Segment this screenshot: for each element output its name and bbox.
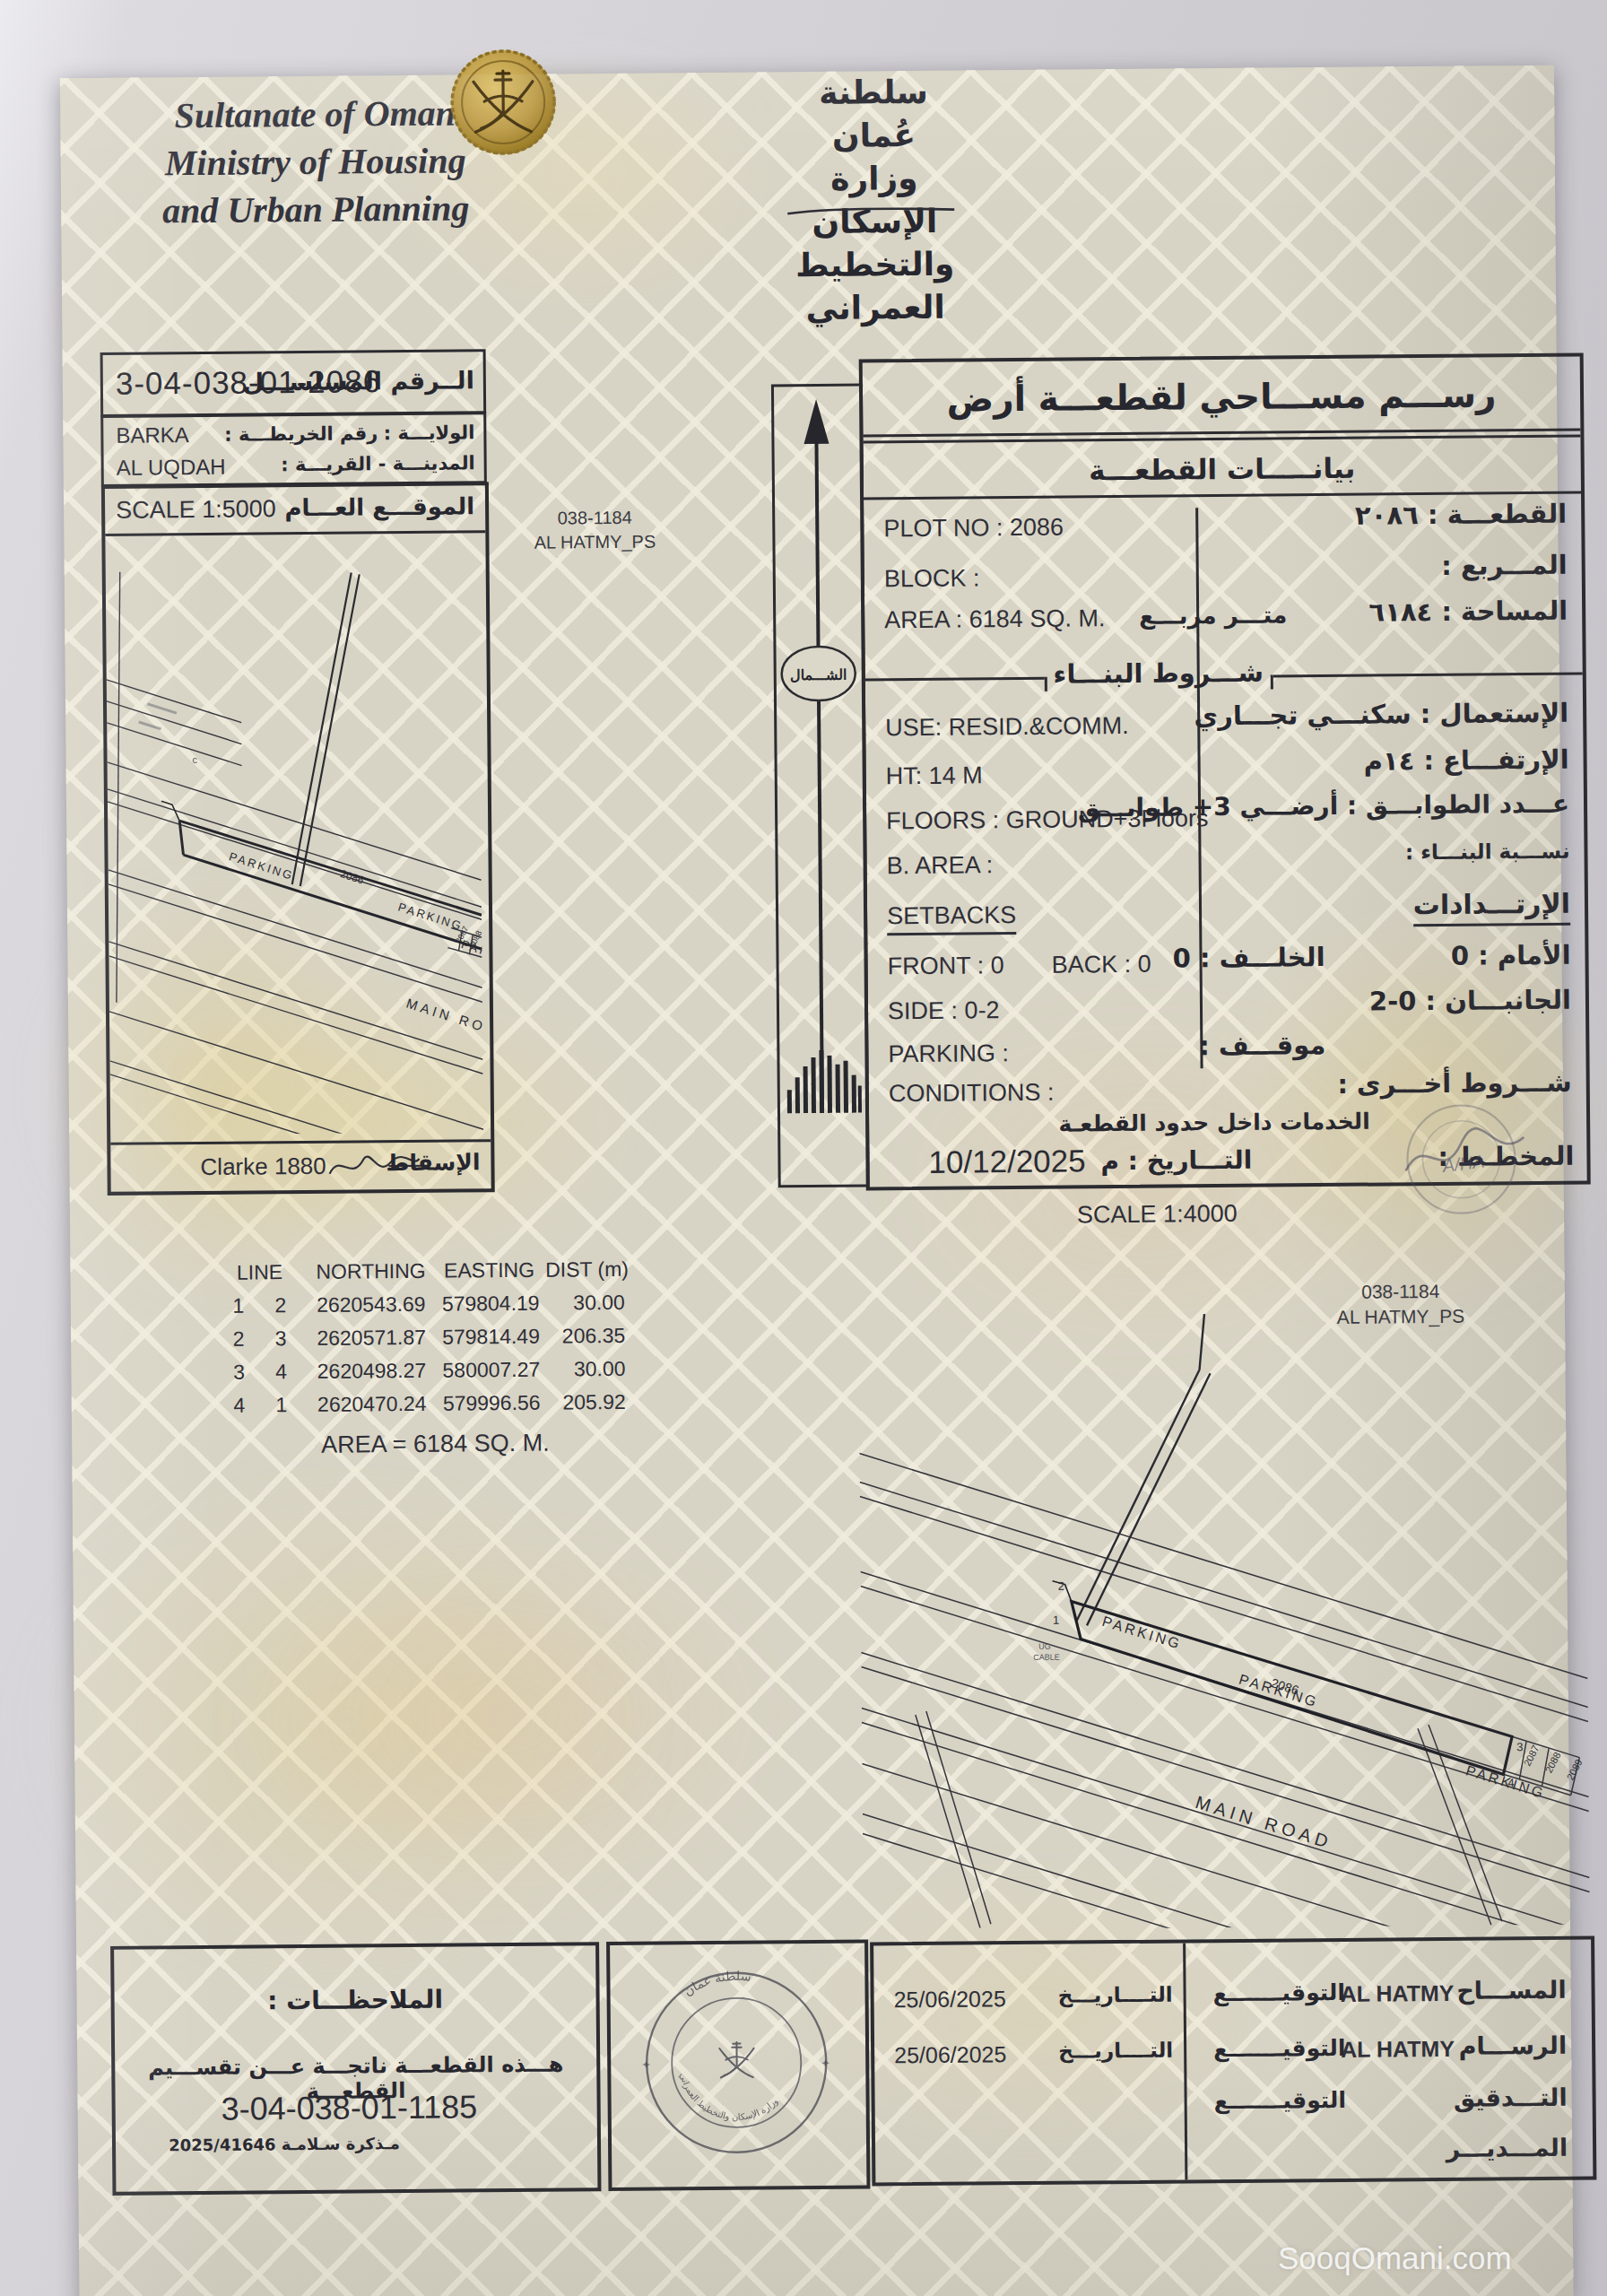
role-label: التـــدقيق [1454, 2083, 1568, 2112]
signature-name: AL HATMY [1340, 1980, 1454, 2007]
road-lines [106, 569, 483, 1135]
back-ar: الخلـــف : 0 [1173, 942, 1325, 973]
sides-ar: الجانبـــان : 0-2 [1369, 985, 1571, 1017]
site-watermark: SooqOmani.com [1278, 2240, 1512, 2276]
front-ar: الأمام : 0 [1451, 940, 1571, 971]
signature-divider [1183, 1943, 1187, 2179]
computed-area-line: AREA = 6184 SQ. M. [321, 1430, 550, 1459]
notes-line3: مـذكرة سـلامـة 2025/41646 [116, 2134, 453, 2155]
table-cell: 2620498.27 [304, 1357, 439, 1385]
barcode-icon [786, 1050, 862, 1114]
wilaya-value: BARKA [116, 422, 189, 448]
official-stamp-box: سلطنة عمان وزارة الإسكان والتخطيط العمرا… [606, 1940, 870, 2192]
side-en: SIDE : 0-2 [888, 996, 1000, 1025]
date-label: التــــاريـــخ [1057, 1983, 1172, 2007]
notes-box: الملاحظـــات : هـــذه القطعـــة ناتجـــة… [110, 1942, 601, 2196]
table-cell: 2620543.69 [304, 1291, 439, 1318]
corner-number: 2 [1058, 1579, 1064, 1593]
site-plan-drawing: PARKING 2086 PARKING PARKING MAIN ROAD 2… [105, 533, 483, 1135]
survey-date-value: 10/12/2025 [928, 1143, 1086, 1180]
height-ar: الإرتفـــاع : ١٤م [1364, 744, 1569, 777]
signature-label: التوقيـــــــع [1214, 2087, 1347, 2114]
survey-data-box: رســـم مســـاحي لقطعـــة أرض بيانـــــات… [859, 352, 1591, 1190]
main-road-label: MAIN ROAD [404, 996, 483, 1043]
title-line: Ministry of Housing [158, 136, 473, 187]
corner-number: 3 [1516, 1740, 1523, 1753]
role-label: المـــديـــر [1446, 2134, 1568, 2162]
illegible-lane-text [138, 702, 178, 730]
site-plan-footer: Clarke 1880 الإسقاط [110, 1139, 491, 1192]
plot-data-subtitle: بيانـــــات القطعـــة [864, 439, 1582, 500]
area-code: 038-1184 [523, 505, 666, 530]
area-code-label: 038-1184 AL HATMY_PS [523, 505, 666, 554]
building-area-en: B. AREA : [886, 851, 993, 880]
corner-number: 1 [1053, 1613, 1059, 1627]
svg-text:✦: ✦ [641, 2058, 651, 2072]
road-lines [859, 1448, 1590, 1931]
signature-label: التوقيـــــــع [1213, 2035, 1346, 2062]
north-arrow-strip: الشـــمال [771, 384, 870, 1188]
serial-number-label: الــرقم المسلســـل [243, 366, 474, 396]
stamp-bottom-text: وزارة الإسكان والتخطيط العمراني [677, 2071, 780, 2123]
village-label: المدينـــة - القريـــة : [281, 452, 475, 475]
table-cell: 2620470.24 [305, 1390, 439, 1418]
table-cell: 2 [261, 1291, 300, 1318]
area-ar: المساحة : ٦١٨٤ [1368, 596, 1568, 628]
location-box: BARKA رقم الخريطـــة : الولايـــة : AL U… [100, 412, 487, 487]
table-cell: 2 [220, 1325, 257, 1352]
serial-number-box: 3-04-038-01-2086 الــرقم المسلســـل [100, 349, 487, 417]
plot-number-label: 2086 [339, 867, 366, 886]
area-en: AREA : 6184 SQ. M. [884, 604, 1105, 634]
table-cell: 205.92 [542, 1388, 635, 1416]
title-line: وزارة الإسكان [777, 156, 973, 244]
svg-text:سلطنة عمان: سلطنة عمان [681, 1968, 752, 1998]
ministry-title-english: Sultanate of Oman Ministry of Housing an… [157, 89, 473, 234]
title-line: سلطنة عُمان [776, 70, 972, 158]
use-ar: الإستعمال : سكنـــي تجـــاري [1194, 698, 1568, 732]
area-code-label: 038-1184 AL HATMY_PS [1336, 1281, 1464, 1328]
date-label: التــــاريـــخ [1058, 2039, 1173, 2063]
wilaya-label: الولايـــة : [384, 422, 475, 444]
table-cell: 4 [261, 1358, 300, 1385]
role-label: الرســـام [1459, 2031, 1568, 2060]
scanned-survey-document: Sultanate of Oman Ministry of Housing an… [60, 65, 1574, 2296]
plot-no-en: PLOT NO : 2086 [883, 514, 1064, 544]
oman-emblem-icon [448, 47, 559, 157]
table-cell: 579996.56 [443, 1389, 538, 1417]
title-line: and Urban Planning [158, 184, 473, 234]
projection-label: الإسقاط [386, 1149, 480, 1176]
survey-date-label: التـــاريخ : م [1100, 1145, 1252, 1176]
col-header-dist: DIST (m) [540, 1256, 633, 1283]
title-line: Sultanate of Oman [157, 89, 473, 139]
building-ratio-ar: نســـبة البنـــاء : [1405, 839, 1570, 865]
detail-plan-drawing: 2 1 3 4 PARKING 2086 PARKING PARKING MAI… [858, 1261, 1590, 1931]
main-access-road [1073, 1314, 1212, 1625]
scale-1-4000: SCALE 1:4000 [1077, 1200, 1238, 1230]
area-name: AL HATMY_PS [1337, 1306, 1465, 1328]
table-cell: 30.00 [541, 1289, 634, 1317]
table-cell: 206.35 [541, 1322, 634, 1350]
bracket-line-right [1273, 673, 1583, 678]
planner-initials: A/HA [1441, 1152, 1486, 1176]
north-arrow-icon [803, 399, 835, 1109]
table-cell: 1 [262, 1391, 301, 1418]
ghost-calligraphy [225, 1525, 785, 1906]
col-header-easting: EASTING [441, 1257, 536, 1284]
parent-plot-serial: 3-04-038-01-1185 [221, 2088, 477, 2127]
front-en: FRONT : 0 [887, 952, 1003, 980]
col-header-line: LINE [219, 1258, 300, 1286]
use-en: USE: RESID.&COMM. [885, 712, 1129, 742]
table-cell: 579814.49 [442, 1323, 537, 1351]
adjacent-plot-label: 2089 [1565, 1757, 1585, 1781]
village-value: AL UQDAH [117, 455, 226, 481]
signature-name: AL HATMY [1341, 2036, 1455, 2063]
site-plan-box: SCALE 1:5000 الموقـــع العـــام PARKING … [101, 482, 495, 1196]
general-location-label: الموقـــع العـــام [284, 492, 474, 521]
signature-label: التوقيـــــــع [1212, 1979, 1345, 2006]
plot-ar: القطعـــة : ٢٠٨٦ [1355, 499, 1568, 531]
table-cell: 2620571.87 [304, 1324, 439, 1352]
table-cell: 3 [220, 1358, 257, 1385]
svg-text:وزارة الإسكان والتخطيط العمران: وزارة الإسكان والتخطيط العمراني [677, 2071, 780, 2123]
setbacks-en: SETBACKS [887, 901, 1016, 935]
col-header-northing: NORTHING [303, 1257, 438, 1285]
parking-label: PARKING [396, 900, 465, 934]
khanjar-icon [719, 2042, 754, 2078]
table-cell: 579804.19 [442, 1290, 537, 1318]
conditions-en: CONDITIONS : [889, 1079, 1055, 1109]
survey-title: رســـم مســـاحي لقطعـــة أرض [863, 357, 1581, 438]
setbacks-ar: الإرتـــدادات [1412, 888, 1570, 927]
table-cell: 4 [221, 1391, 258, 1418]
adjacent-plot-label: 2088 [1543, 1751, 1563, 1775]
signatures-box: المســـاح AL HATMY التوقيـــــــع التـــ… [870, 1935, 1596, 2186]
utility-label: UG [1038, 1642, 1051, 1651]
ministry-round-stamp: سلطنة عمان وزارة الإسكان والتخطيط العمرا… [626, 1956, 847, 2173]
building-conditions-header: شـــروط البنـــاء [1047, 657, 1271, 690]
table-cell: 3 [261, 1325, 300, 1352]
adjacent-plot-label: 2087 [1522, 1744, 1542, 1768]
site-plan-header: SCALE 1:5000 الموقـــع العـــام [105, 485, 485, 536]
coordinate-table: LINE NORTHING EASTING DIST (m) 1 2 26205… [219, 1256, 635, 1419]
area-unit-ar: متـــر مربـــع [1139, 601, 1287, 629]
table-cell: 30.00 [541, 1355, 634, 1383]
bracket-line-left [865, 677, 1045, 682]
ministry-title-arabic: سلطنة عُمان وزارة الإسكان والتخطيط العمر… [776, 70, 974, 330]
title-line: والتخطيط العمراني [777, 242, 974, 330]
block-en: BLOCK : [884, 564, 980, 593]
datum-label: Clarke 1880 [200, 1152, 326, 1181]
back-en: BACK : 0 [1051, 951, 1151, 979]
table-cell: 1 [220, 1291, 257, 1318]
signature-date: 25/06/2025 [894, 2041, 1006, 2068]
block-ar: المـــربع : [1441, 550, 1568, 581]
column-divider [1195, 508, 1203, 1068]
stamp-top-text: سلطنة عمان [681, 1968, 752, 1998]
planner-stamp: A/HA [1389, 1085, 1542, 1239]
services-note: الخدمات داخل حدود القطعـة [1048, 1109, 1380, 1137]
area-name: AL HATMY_PS [523, 529, 666, 554]
survey-marker: c [192, 754, 197, 765]
height-en: HT: 14 M [886, 761, 983, 790]
floors-ar: عـــدد الطوابـــق : أرضـــي ‎+3‎ طوابـــ… [1078, 789, 1569, 823]
parking-en: PARKING : [888, 1039, 1009, 1068]
notes-title: الملاحظـــات : [114, 1983, 595, 2017]
north-label: الشـــمال [790, 667, 847, 683]
map-number-label: رقم الخريطـــة : [224, 422, 378, 445]
utility-label: CABLE [1033, 1653, 1060, 1662]
signature-date: 25/06/2025 [894, 1986, 1006, 2013]
area-code: 038-1184 [1361, 1281, 1440, 1302]
scale-1-5000: SCALE 1:5000 [116, 495, 276, 525]
svg-text:✦: ✦ [821, 2057, 830, 2070]
table-cell: 580007.27 [442, 1356, 537, 1384]
light-blob [19, 1472, 669, 1979]
role-label: المســـاح [1456, 1976, 1567, 2005]
main-road-label: MAIN ROAD [1194, 1792, 1335, 1852]
title-underline-flourish [784, 204, 960, 218]
parking-ar: موقـــف : [1199, 1030, 1325, 1061]
